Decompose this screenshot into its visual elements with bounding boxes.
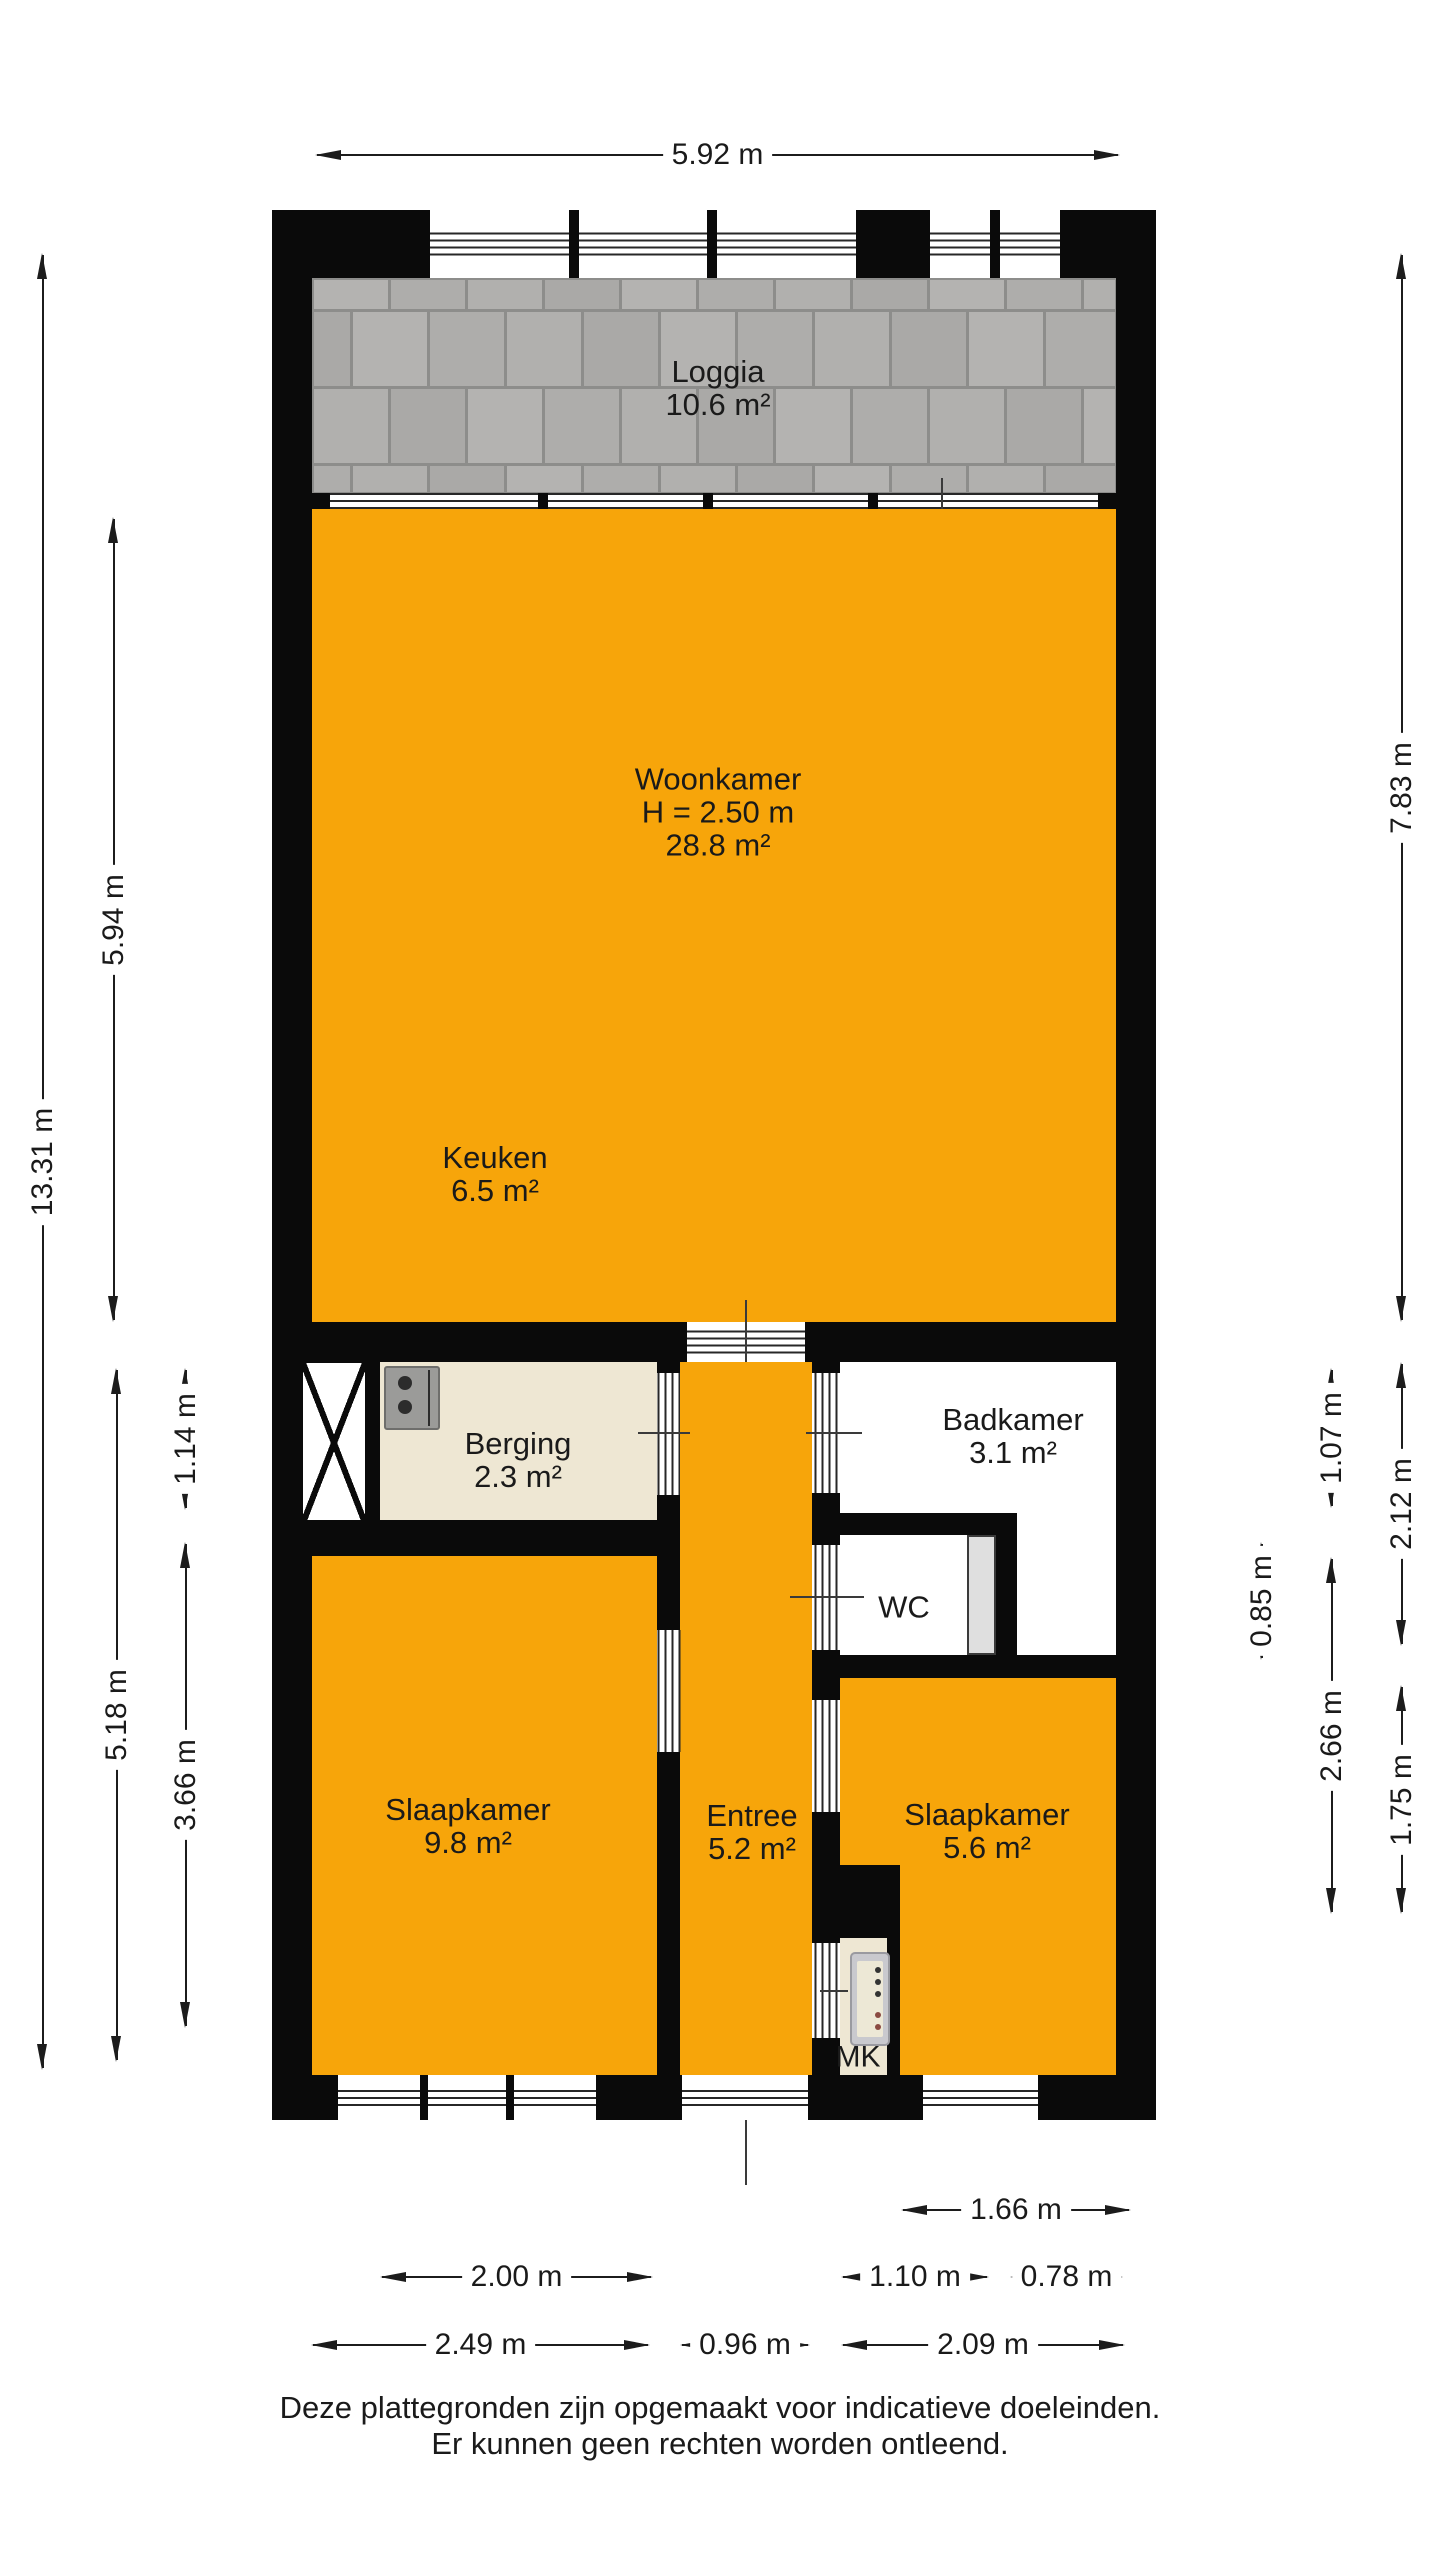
reference-line (745, 2120, 747, 2185)
room-label-berging: Berging 2.3 m² (465, 1427, 572, 1493)
room-area: 10.6 m² (665, 388, 770, 421)
dim-right-lower-inner: 2.66 m (1319, 1557, 1345, 1914)
loggia-tile (545, 280, 619, 309)
loggia-tile (507, 312, 581, 386)
loggia-tile (314, 389, 388, 463)
room-label-slaapkamer-rechts: Slaapkamer 5.6 m² (904, 1798, 1069, 1864)
window-glass-icon (682, 2090, 808, 2106)
reference-line (790, 1596, 864, 1598)
room-label-entree: Entree 5.2 m² (706, 1799, 797, 1865)
wall-segment (1116, 210, 1156, 2120)
dim-right-wc: 0.85 m (1249, 1542, 1275, 1660)
loggia-tile (1046, 312, 1115, 386)
wall-segment (996, 1513, 1017, 1678)
room-name: MK (836, 2041, 881, 2074)
room-label-slaapkamer-links: Slaapkamer 9.8 m² (385, 1793, 550, 1859)
loggia-tile (1084, 280, 1115, 309)
dim-bottom-window-left: 2.00 m (380, 2265, 653, 2289)
loggia-tile (969, 312, 1043, 386)
room-name: Keuken (442, 1141, 547, 1174)
floorplan-page: 5.92 m Loggia 10.6 m² Woonkamer H = 2.50… (0, 0, 1440, 2560)
dim-label: 3.66 m (165, 1730, 207, 1840)
room-name: Slaapkamer (385, 1793, 550, 1826)
loggia-tile (353, 312, 427, 386)
loggia-tile (853, 389, 927, 463)
dim-label: 2.49 m (426, 2328, 536, 2362)
wall-segment (372, 1356, 380, 1530)
dim-label: 5.18 m (96, 1660, 138, 1770)
loggia-tile (815, 466, 889, 492)
dim-right-slaapkamer: 1.75 m (1389, 1685, 1415, 1914)
room-name: Loggia (665, 355, 770, 388)
room-label-loggia: Loggia 10.6 m² (665, 355, 770, 421)
window-glass-icon (338, 2090, 596, 2106)
room-area: 5.6 m² (904, 1831, 1069, 1864)
loggia-tile (776, 389, 850, 463)
room-area: 2.3 m² (465, 1460, 572, 1493)
installation-shaft (296, 1356, 372, 1530)
door-berging (657, 1373, 680, 1495)
loggia-tile (1046, 466, 1115, 492)
window-glass-icon (923, 2090, 1038, 2106)
wall-segment (840, 1513, 1017, 1535)
loggia-tile (622, 280, 696, 309)
loggia-tile (1007, 389, 1081, 463)
door-leaf-icon (657, 1630, 680, 1752)
loggia-tile (815, 312, 889, 386)
room-area: 9.8 m² (385, 1826, 550, 1859)
room-height: H = 2.50 m (635, 796, 802, 829)
loggia-tile (468, 280, 542, 309)
room-label-meterkast: MK (836, 2041, 881, 2074)
dim-right-badkamer-inner: 1.07 m (1319, 1368, 1345, 1508)
loggia-tile (391, 280, 465, 309)
wall-segment (272, 1520, 680, 1556)
room-label-badkamer: Badkamer 3.1 m² (942, 1403, 1083, 1469)
room-label-woonkamer: Woonkamer H = 2.50 m 28.8 m² (635, 763, 802, 862)
loggia-tile (391, 389, 465, 463)
wall-segment (272, 210, 312, 2120)
room-area: 5.2 m² (706, 1832, 797, 1865)
loggia-tile (969, 466, 1043, 492)
duct-shaft (967, 1535, 996, 1655)
dim-right-badkamer-zone: 2.12 m (1389, 1362, 1415, 1646)
dim-label: 0.96 m (690, 2328, 800, 2362)
window-glass-icon (312, 493, 1116, 509)
door-slaapkamer-rechts (812, 1700, 840, 1812)
loggia-tile (430, 466, 504, 492)
loggia-tile (468, 389, 542, 463)
loggia-tile (430, 312, 504, 386)
dim-label: 2.12 m (1381, 1449, 1423, 1559)
door-slaapkamer-links (657, 1630, 680, 1752)
dim-label: 1.75 m (1381, 1745, 1423, 1855)
loggia-tile (930, 389, 1004, 463)
room-entree (680, 1362, 812, 2075)
dim-left-total: 13.31 m (30, 253, 56, 2070)
window-slaapkamer-links (338, 2075, 596, 2120)
loggia-tile (892, 312, 966, 386)
dim-right-upper-section: 7.83 m (1389, 253, 1415, 1322)
boiler-icon (384, 1366, 440, 1430)
dim-label: 13.31 m (22, 1098, 64, 1224)
dim-left-lower-section: 5.18 m (104, 1368, 130, 2062)
dim-bottom-right-corner: 0.78 m (1010, 2265, 1123, 2289)
dim-label: 0.85 m (1241, 1546, 1283, 1656)
wall-segment (812, 1655, 1118, 1678)
loggia-tile (853, 280, 927, 309)
loggia-tile (353, 466, 427, 492)
room-name: WC (878, 1591, 930, 1624)
loggia-tile (584, 312, 658, 386)
door-leaf-icon (815, 1700, 838, 1812)
dim-bottom-room-left: 2.49 m (311, 2333, 650, 2357)
room-name: Badkamer (942, 1403, 1083, 1436)
loggia-tile (314, 280, 388, 309)
loggia-tile (776, 280, 850, 309)
loggia-tile (1007, 280, 1081, 309)
dim-label: 1.66 m (961, 2193, 1071, 2227)
dim-left-woonkamer: 5.94 m (101, 517, 127, 1322)
dim-top-width: 5.92 m (315, 143, 1120, 167)
room-label-keuken: Keuken 6.5 m² (442, 1141, 547, 1207)
disclaimer-line-2: Er kunnen geen rechten worden ontleend. (0, 2426, 1440, 2462)
dim-label: 5.92 m (663, 138, 773, 172)
reference-line (820, 1990, 848, 1992)
loggia-tile (584, 466, 658, 492)
reference-line (638, 1432, 690, 1434)
room-area: 6.5 m² (442, 1174, 547, 1207)
loggia-tile (314, 312, 350, 386)
dim-label: 1.10 m (860, 2260, 970, 2294)
loggia-tile (314, 466, 350, 492)
balustrade-opening (930, 210, 1060, 278)
reference-line (806, 1432, 862, 1434)
arrow-right-icon (1094, 150, 1120, 160)
room-label-wc: WC (878, 1591, 930, 1624)
balustrade-opening (430, 210, 856, 278)
loggia-tile (892, 466, 966, 492)
disclaimer-line-1: Deze plattegronden zijn opgemaakt voor i… (0, 2390, 1440, 2426)
room-name: Slaapkamer (904, 1798, 1069, 1831)
door-leaf-icon (657, 1373, 680, 1495)
railing-lines-icon (430, 233, 856, 256)
window-entree (682, 2075, 808, 2120)
loggia-tile (738, 466, 812, 492)
window-slaapkamer-rechts (923, 2075, 1038, 2120)
meter-panel-icon (850, 1952, 890, 2046)
dim-label: 7.83 m (1381, 733, 1423, 843)
dim-label: 2.00 m (462, 2260, 572, 2294)
loggia-tile (1084, 389, 1115, 463)
dim-bottom-mk-zone: 1.66 m (901, 2198, 1131, 2222)
room-name: Woonkamer (635, 763, 802, 796)
dim-label: 1.14 m (165, 1384, 207, 1494)
room-name: Entree (706, 1799, 797, 1832)
dim-label: 5.94 m (93, 865, 135, 975)
dim-label: 2.66 m (1311, 1681, 1353, 1791)
dim-left-berging: 1.14 m (173, 1368, 199, 1510)
loggia-tile (930, 280, 1004, 309)
dim-bottom-entree: 0.96 m (680, 2333, 810, 2357)
dim-label: 0.78 m (1012, 2260, 1122, 2294)
loggia-tile (699, 280, 773, 309)
loggia-tile (545, 389, 619, 463)
dim-left-slaapkamer: 3.66 m (173, 1542, 199, 2028)
window-loggia (312, 493, 1116, 509)
room-woonkamer (312, 509, 1116, 1322)
dim-bottom-room-right: 2.09 m (841, 2333, 1125, 2357)
dim-bottom-window-right: 1.10 m (841, 2265, 989, 2289)
room-area: 28.8 m² (635, 829, 802, 862)
room-name: Berging (465, 1427, 572, 1460)
loggia-tile (661, 466, 735, 492)
room-area: 3.1 m² (942, 1436, 1083, 1469)
dim-label: 1.07 m (1311, 1383, 1353, 1493)
dim-label: 2.09 m (928, 2328, 1038, 2362)
loggia-tile (507, 466, 581, 492)
